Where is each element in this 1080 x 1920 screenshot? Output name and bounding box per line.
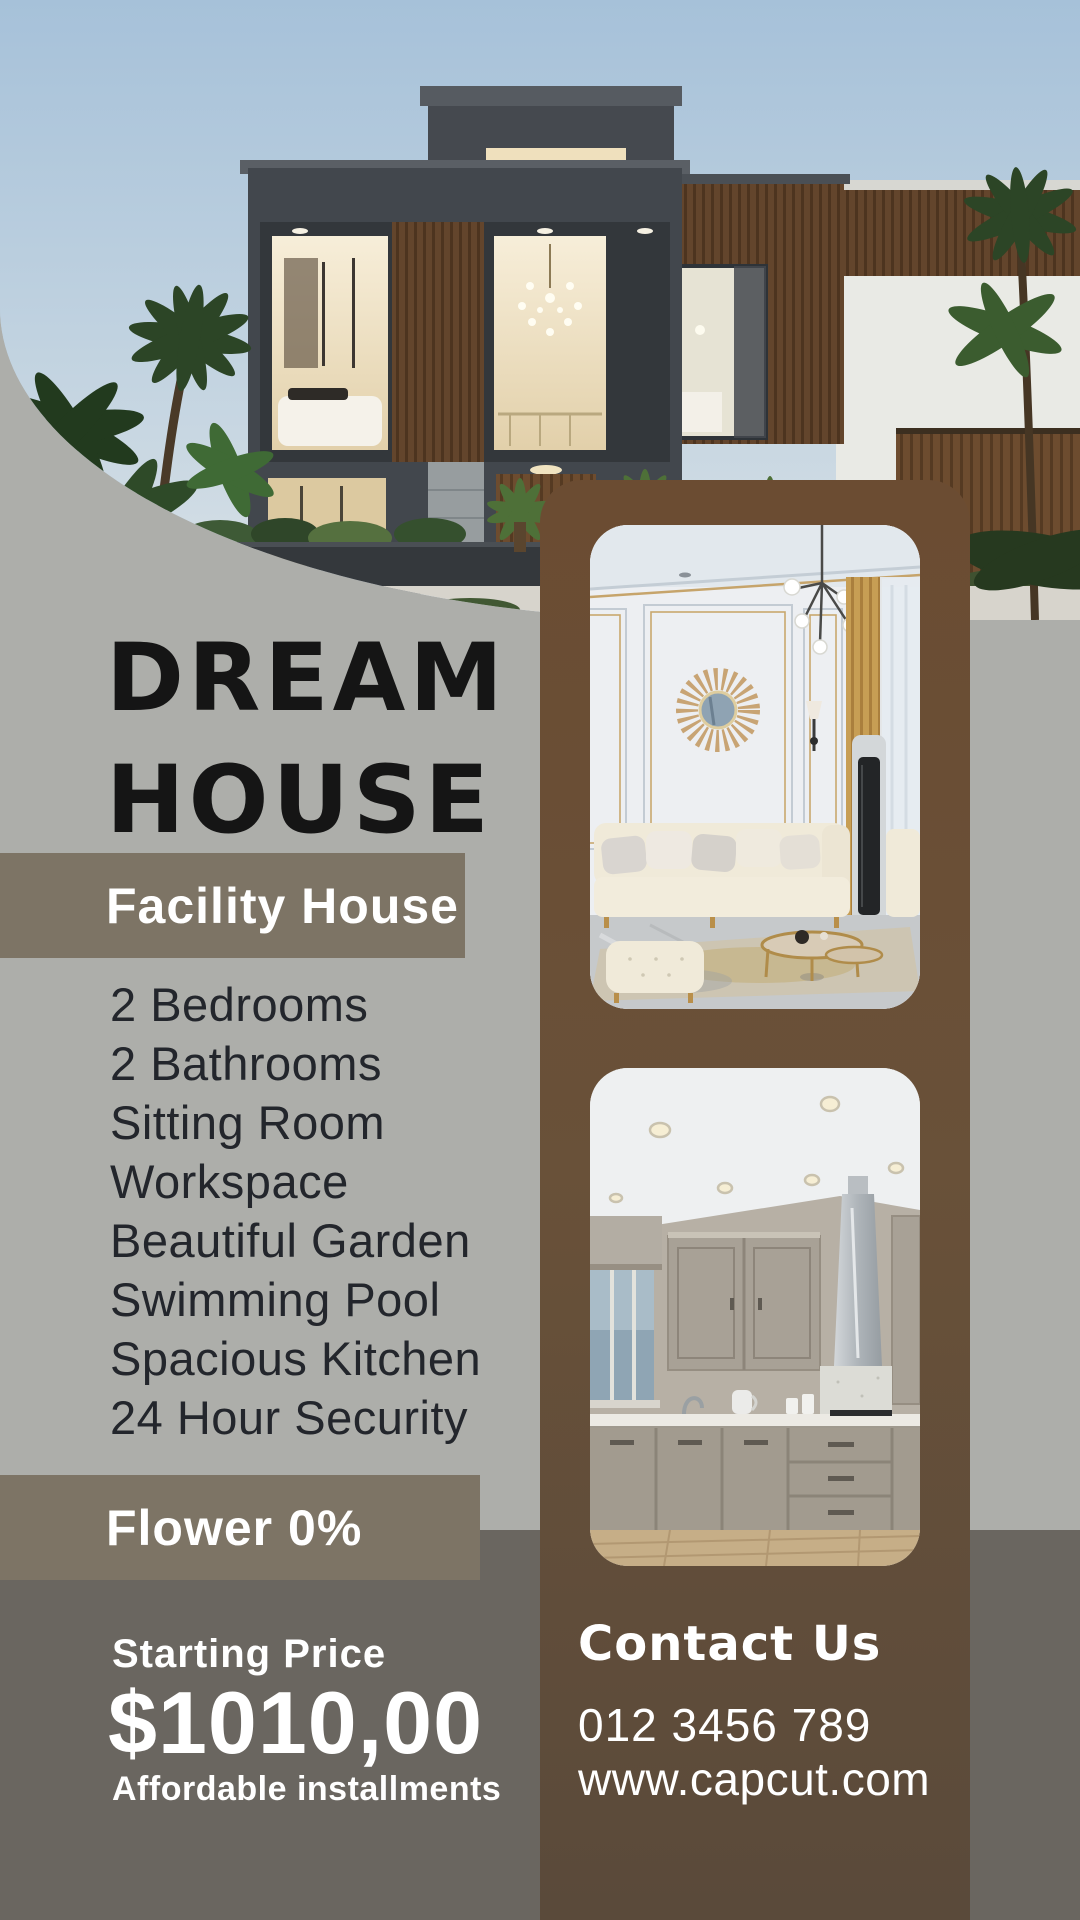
floor-ac-unit [852,735,886,927]
pillows [600,829,821,875]
facility-item: Sitting Room [110,1093,481,1152]
facility-item: 2 Bedrooms [110,975,481,1034]
contact-website: www.capcut.com [578,1752,930,1806]
backsplash [820,1366,892,1416]
facility-item: Beautiful Garden [110,1211,481,1270]
canister [802,1394,814,1414]
facility-list: 2 Bedrooms 2 Bathrooms Sitting Room Work… [110,975,481,1447]
facility-header-label: Facility House [106,877,459,935]
living-room-photo [590,525,920,1009]
facility-item: 24 Hour Security [110,1388,481,1447]
facility-item: Spacious Kitchen [110,1329,481,1388]
facility-item: Swimming Pool [110,1270,481,1329]
price-note: Affordable installments [112,1770,501,1809]
price-value: $1010,00 [108,1672,483,1774]
living-window [494,236,606,450]
bedroom-window [272,236,388,450]
living-room-illustration [590,525,920,1009]
side-panel: Contact Us 012 3456 789 www.capcut.com [540,480,970,1920]
canister [786,1398,798,1414]
kitchen-photo [590,1068,920,1566]
facility-header-band: Facility House [0,853,465,958]
wood-clad-wing [658,174,850,444]
starting-price-label: Starting Price [112,1632,386,1677]
contact-phone: 012 3456 789 [578,1698,871,1752]
real-estate-flyer: DREAM HOUSE Facility House 2 Bedrooms 2 … [0,0,1080,1920]
wood-mullion [392,222,484,462]
title-line-1: DREAM [106,618,507,740]
page-title: DREAM HOUSE [106,618,507,862]
upper-cabinets [668,1232,820,1370]
hob [830,1410,892,1416]
kitchen-illustration [590,1068,920,1566]
tall-cabinet [892,1216,920,1404]
kitchen-window [590,1216,662,1408]
facility-item: 2 Bathrooms [110,1034,481,1093]
wood-floor [590,1530,920,1566]
flower-band: Flower 0% [0,1475,480,1580]
flower-band-label: Flower 0% [106,1499,362,1557]
facility-item: Workspace [110,1152,481,1211]
title-line-2: HOUSE [106,740,507,862]
contact-heading: Contact Us [578,1616,881,1672]
lower-cabinets [590,1428,920,1530]
